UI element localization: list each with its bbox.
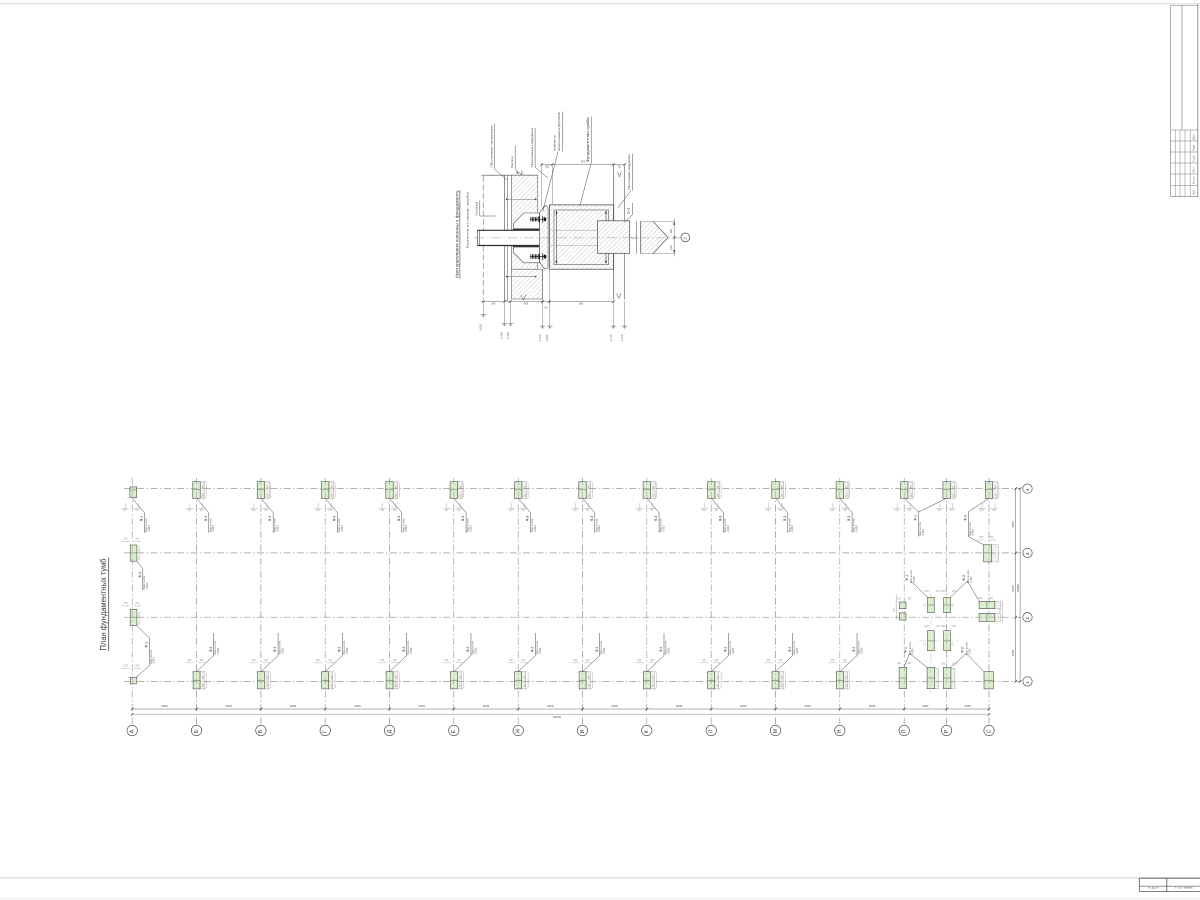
- svg-text:Колонна из проф. трубы: Колонна из проф. трубы: [465, 192, 469, 248]
- svg-text:-0.620: -0.620: [667, 647, 670, 654]
- svg-text:-0.440: -0.440: [545, 334, 549, 342]
- svg-text:0.000: 0.000: [479, 323, 483, 330]
- svg-text:Ф-2: Ф-2: [788, 647, 792, 652]
- svg-text:Ф-1: Ф-1: [914, 515, 918, 521]
- svg-text:-0.620: -0.620: [405, 525, 408, 532]
- svg-text:Ф-2: Ф-2: [209, 647, 213, 652]
- svg-text:Ф-3: Ф-3: [204, 516, 208, 522]
- svg-text:6000: 6000: [740, 704, 747, 708]
- svg-text:М: М: [773, 729, 779, 733]
- svg-text:-0.250: -0.250: [506, 332, 510, 340]
- svg-text:Раствор: Раствор: [510, 156, 514, 168]
- svg-text:Ск-1: Ск-1: [627, 207, 631, 214]
- svg-text:Ф-2: Ф-2: [961, 647, 965, 653]
- svg-text:Ф-3: Ф-3: [847, 516, 851, 522]
- svg-text:План фундаментных тумб: План фундаментных тумб: [99, 558, 108, 650]
- svg-text:Ж: Ж: [516, 728, 522, 733]
- svg-text:Ф-3: Ф-3: [268, 516, 272, 522]
- svg-text:6000: 6000: [482, 704, 489, 708]
- svg-text:Пол but вой: Пол but вой: [476, 201, 479, 215]
- svg-text:1000: 1000: [940, 589, 946, 591]
- svg-text:-0.620: -0.620: [346, 647, 349, 654]
- svg-text:6000: 6000: [611, 704, 618, 708]
- svg-text:-0.620: -0.620: [277, 525, 280, 532]
- svg-text:Изм.: Изм.: [1192, 189, 1196, 195]
- svg-text:Г: Г: [323, 730, 329, 733]
- svg-text:Н: Н: [837, 729, 843, 733]
- svg-text:Узел крепления колонны к фунда: Узел крепления колонны к фундаменту: [455, 190, 460, 279]
- svg-text:-0.620: -0.620: [922, 529, 925, 536]
- svg-text:N док.: N док.: [1192, 154, 1196, 162]
- svg-text:тамроф 1 :б». у: тамроф 1 :б». у: [1174, 886, 1193, 890]
- svg-text:Ф-3: Ф-3: [783, 516, 787, 522]
- svg-text:Ф-3: Ф-3: [333, 516, 337, 522]
- svg-text:Ф-3: Ф-3: [590, 516, 594, 522]
- svg-text:-0.620: -0.620: [796, 647, 799, 654]
- svg-text:600: 600: [523, 302, 528, 306]
- svg-text:-0.620: -0.620: [146, 582, 149, 589]
- svg-text:2: 2: [683, 237, 688, 240]
- svg-text:150: 150: [669, 229, 673, 234]
- svg-text:6000: 6000: [1011, 521, 1015, 528]
- svg-text:625: 625: [580, 160, 585, 164]
- svg-text:1000: 1000: [924, 589, 930, 591]
- svg-text:П: П: [902, 729, 908, 733]
- svg-text:Ф-2: Ф-2: [595, 647, 599, 652]
- svg-text:-0.620: -0.620: [732, 647, 735, 654]
- svg-text:Верх на отм.: Верх на отм.: [911, 569, 913, 583]
- svg-text:-0.620: -0.620: [856, 525, 859, 532]
- svg-text:-0.620: -0.620: [148, 525, 151, 532]
- svg-text:-0.620: -0.620: [470, 525, 473, 532]
- svg-text:Ф-2: Ф-2: [963, 515, 967, 521]
- svg-text:6000: 6000: [1011, 585, 1015, 592]
- svg-text:Песчаная промазка: Песчаная промазка: [490, 125, 494, 167]
- svg-text:Ф-2: Ф-2: [402, 647, 406, 652]
- svg-text:18000: 18000: [1016, 584, 1020, 592]
- svg-text:1000: 1000: [940, 624, 946, 626]
- svg-text:Ф-2: Ф-2: [466, 647, 470, 652]
- svg-text:-0.620: -0.620: [282, 647, 285, 654]
- svg-text:-0.620: -0.620: [969, 648, 971, 655]
- svg-text:6000: 6000: [354, 704, 361, 708]
- svg-text:6000: 6000: [675, 704, 682, 708]
- svg-text:-0.620: -0.620: [217, 647, 220, 654]
- svg-text:Ф-2: Ф-2: [530, 647, 534, 652]
- svg-text:Ф-1: Ф-1: [145, 642, 149, 648]
- svg-text:150: 150: [669, 245, 673, 250]
- svg-text:-0.240: -0.240: [500, 332, 504, 340]
- svg-text:900: 900: [578, 302, 583, 306]
- svg-text:Ф-2: Ф-2: [138, 572, 142, 578]
- svg-text:-0.620: -0.620: [598, 525, 601, 532]
- svg-text:Лист: Лист: [1192, 167, 1196, 173]
- svg-text:Ф-2: Ф-2: [962, 575, 966, 581]
- svg-text:6000: 6000: [161, 704, 168, 708]
- svg-text:-0.620: -0.620: [539, 647, 542, 654]
- svg-text:-0.620: -0.620: [860, 647, 863, 654]
- svg-text:-0.620: -0.620: [410, 647, 413, 654]
- svg-text:Ф-2: Ф-2: [723, 647, 727, 652]
- svg-text:Кол.уч: Кол.уч: [1192, 176, 1196, 184]
- svg-text:4000: 4000: [922, 704, 929, 708]
- svg-text:С: С: [986, 729, 992, 733]
- svg-text:Ф-3: Ф-3: [526, 516, 530, 522]
- svg-text:-0.620: -0.620: [212, 525, 215, 532]
- svg-text:Л: Л: [709, 730, 715, 733]
- svg-text:1: 1: [1025, 681, 1031, 684]
- svg-text:2: 2: [1025, 617, 1031, 620]
- svg-text:Верх на отм.: Верх на отм.: [968, 569, 970, 583]
- svg-text:Ф-2: Ф-2: [337, 647, 341, 652]
- svg-text:Дата: Дата: [1192, 134, 1196, 140]
- svg-text:Ф-1: Ф-1: [140, 516, 144, 522]
- svg-text:4: 4: [1025, 488, 1031, 491]
- svg-text:3: 3: [1025, 552, 1031, 555]
- svg-text:-1.100: -1.100: [620, 334, 624, 342]
- svg-text:Верх на отм.: Верх на отм.: [967, 641, 969, 655]
- svg-text:Песчаная подушка: Песчаная подушка: [627, 154, 631, 190]
- svg-text:6000: 6000: [225, 704, 232, 708]
- svg-text:6000: 6000: [547, 704, 554, 708]
- svg-text:100: 100: [491, 302, 496, 306]
- svg-text:1841: 1841: [978, 535, 984, 537]
- svg-text:-0.620: -0.620: [603, 647, 606, 654]
- svg-text:3000: 3000: [952, 662, 958, 664]
- svg-text:Песчаная подушка: Песчаная подушка: [530, 128, 534, 167]
- svg-text:2030: 2030: [941, 662, 947, 664]
- svg-text:-0.620: -0.620: [727, 525, 730, 532]
- svg-text:4000: 4000: [964, 704, 971, 708]
- svg-text:-0.620: -0.620: [534, 525, 537, 532]
- svg-text:И: И: [580, 729, 586, 733]
- svg-text:К: К: [644, 730, 650, 733]
- svg-text:Набивка из: Набивка из: [553, 135, 557, 151]
- svg-text:Ф-2: Ф-2: [273, 647, 277, 652]
- svg-text:Ф-3: Ф-3: [719, 516, 723, 522]
- svg-text:-0.700: -0.700: [538, 334, 542, 342]
- svg-text:6000: 6000: [289, 704, 296, 708]
- svg-text:6000: 6000: [418, 704, 425, 708]
- svg-text:Подп.: Подп.: [1192, 144, 1196, 151]
- svg-text:Ф-1: Ф-1: [905, 575, 909, 581]
- svg-text:1000: 1000: [924, 624, 930, 626]
- svg-text:Ф-3: Ф-3: [654, 516, 658, 522]
- svg-text:-0.620: -0.620: [791, 525, 794, 532]
- svg-text:6000: 6000: [868, 704, 875, 708]
- svg-text:6000: 6000: [1011, 649, 1015, 656]
- svg-text:6000: 6000: [804, 704, 811, 708]
- svg-text:300: 300: [545, 165, 550, 169]
- svg-text:Верх на отм.: Верх на отм.: [910, 641, 912, 655]
- svg-text:-0.680: -0.680: [971, 576, 973, 583]
- svg-text:-0.680: -0.680: [913, 648, 915, 655]
- svg-text:ил 09 та: ил 09 та: [1148, 886, 1158, 890]
- svg-text:-0.620: -0.620: [153, 657, 156, 664]
- svg-text:1100: 1100: [123, 664, 129, 666]
- svg-text:-0.620: -0.620: [663, 525, 666, 532]
- svg-text:-0.620: -0.620: [341, 525, 344, 532]
- svg-text:0816: 0816: [977, 596, 983, 598]
- svg-text:80000: 80000: [553, 715, 561, 719]
- svg-text:-0.680: -0.680: [914, 576, 916, 583]
- svg-text:асбестоцемента ДСП М150: асбестоцемента ДСП М150: [557, 112, 561, 151]
- svg-text:-1.720: -1.720: [609, 334, 613, 342]
- svg-text:-0.620: -0.620: [474, 647, 477, 654]
- svg-text:Фундаментная тумба: Фундаментная тумба: [586, 117, 590, 162]
- svg-text:Ф-2: Ф-2: [852, 647, 856, 652]
- svg-text:-0.680: -0.680: [972, 529, 975, 536]
- svg-text:Ф-3: Ф-3: [397, 516, 401, 522]
- svg-text:Ф-2: Ф-2: [659, 647, 663, 652]
- svg-text:Ф-3: Ф-3: [461, 516, 465, 522]
